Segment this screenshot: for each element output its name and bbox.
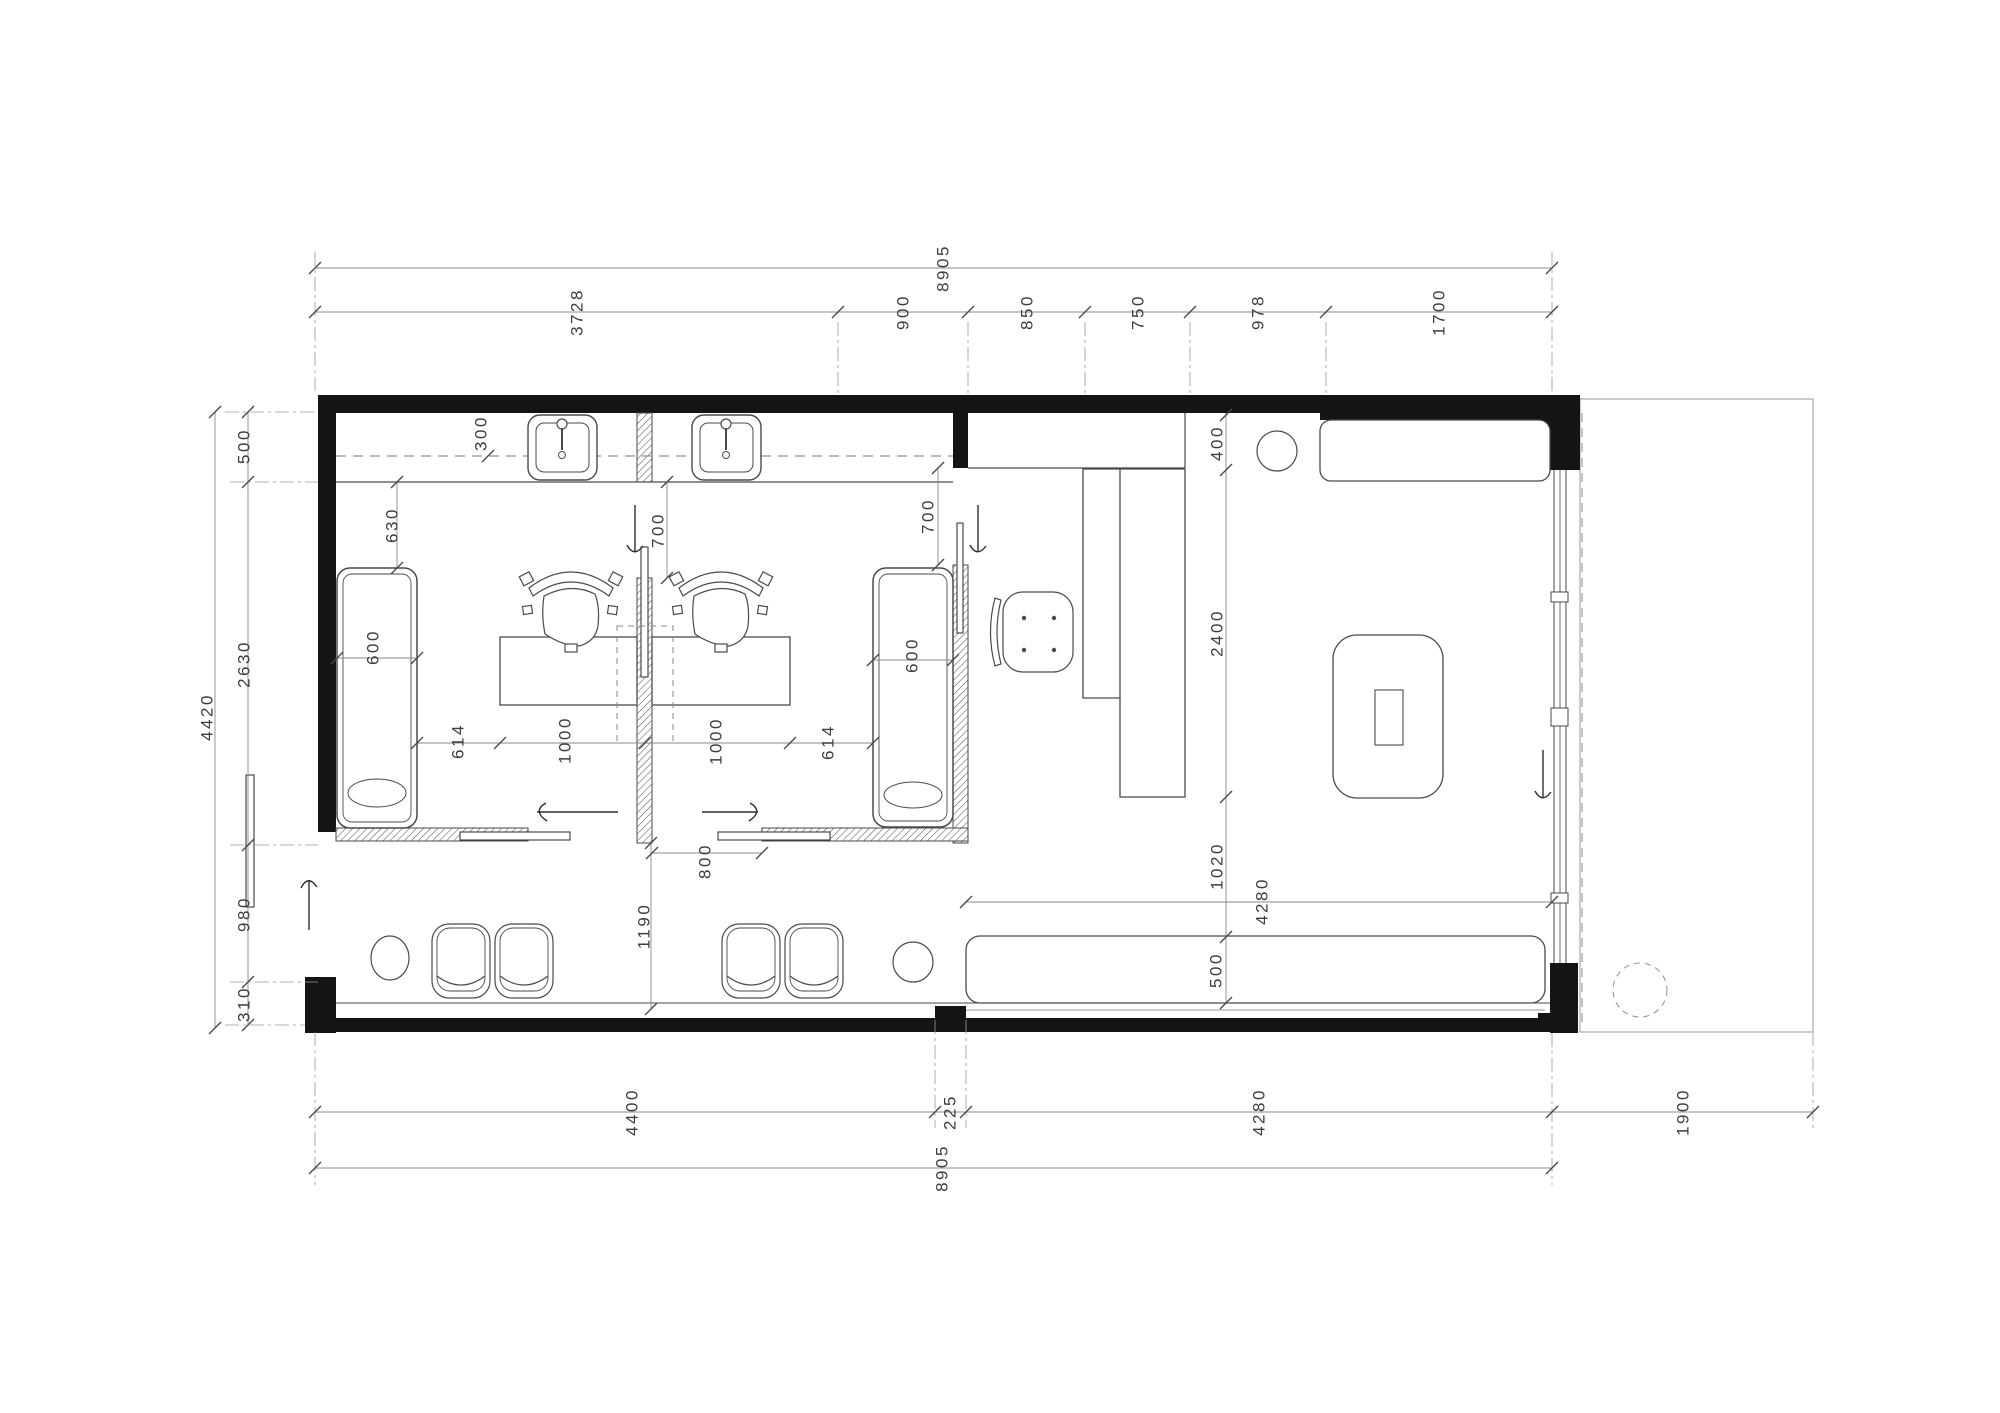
dim-label: 1190 [635, 903, 654, 950]
treatment-bed-1 [337, 568, 417, 828]
room1-slide-left-arrow [537, 803, 618, 821]
dim-label: 4280 [1253, 877, 1272, 925]
dim-label: 310 [235, 986, 254, 1022]
mullion [1551, 893, 1568, 903]
dim-label: 225 [941, 1094, 960, 1130]
dim-label: 614 [449, 723, 468, 759]
sink-1 [528, 415, 597, 480]
waiting-chair [495, 924, 553, 998]
bottom-right-column [1550, 963, 1578, 1033]
window-glazing [1551, 470, 1568, 963]
floor-plan-drawing: 8905 3728 900 850 750 978 1700 4420 500 … [0, 0, 2000, 1413]
dim-label: 614 [819, 724, 838, 760]
dim-label: 630 [383, 507, 402, 543]
treatment-bed-2 [873, 568, 953, 827]
dim-label: 3728 [568, 288, 587, 336]
dim-label: 500 [1207, 952, 1226, 988]
faucet-icon [557, 419, 567, 429]
dim-label-overall-height: 4420 [198, 693, 217, 741]
dim-label: 1020 [1208, 842, 1227, 890]
coffee-table [1333, 635, 1443, 798]
waiting-chair [432, 924, 490, 998]
top-wall [318, 395, 1580, 413]
dim-label: 800 [696, 843, 715, 879]
extension-lines [225, 252, 1813, 1185]
dim-label-overall-bottom: 8905 [933, 1144, 952, 1192]
dim-label: 4280 [1250, 1088, 1269, 1136]
dim-label: 700 [919, 498, 938, 534]
bottom-wall [318, 1018, 1578, 1032]
room2-slide-right-arrow [702, 803, 758, 821]
dim-label: 700 [649, 512, 668, 548]
dim-label: 2400 [1208, 609, 1227, 657]
dim-label: 300 [472, 415, 491, 451]
wall-cabinet [1320, 420, 1550, 481]
dim-label: 900 [894, 294, 913, 330]
dim-label: 1000 [707, 717, 726, 765]
dim-label: 2630 [235, 640, 254, 688]
room1-pocket-door-leaf [641, 547, 648, 677]
sink-2 [692, 415, 761, 480]
reception-office-chair [991, 592, 1074, 672]
dim-label: 978 [1249, 294, 1268, 330]
terrace-dashed-circle [1613, 963, 1667, 1017]
entry-slide-up-arrow [301, 880, 317, 930]
dim-label-terrace: 1900 [1674, 1088, 1693, 1136]
dim-label-overall-top: 8905 [934, 244, 953, 292]
pillow [884, 782, 942, 808]
room1-sliding-door-leaf [460, 832, 570, 840]
dim-label: 850 [1018, 294, 1037, 330]
dim-label: 500 [235, 428, 254, 464]
mullion [1551, 592, 1568, 602]
bottom-right-column-step [1538, 1013, 1552, 1032]
reception-desk [1083, 469, 1185, 797]
dim-label: 1000 [556, 716, 575, 764]
reception-wall-stub [953, 413, 968, 468]
left-wall [318, 395, 336, 832]
floor-plan-sheet: 8905 3728 900 850 750 978 1700 4420 500 … [0, 0, 2000, 1413]
pillow [348, 779, 406, 807]
top-wall-step [1320, 413, 1543, 420]
window-slide-down-arrow [1535, 750, 1551, 798]
room2-sliding-door-leaf [718, 832, 830, 840]
plant-circle [371, 936, 409, 980]
room1-slide-down-arrow [627, 505, 643, 552]
faucet-icon [721, 419, 731, 429]
dim-label: 980 [235, 896, 254, 932]
dim-label: 1700 [1430, 288, 1449, 336]
plant-circle [893, 942, 933, 982]
room2-door-leaf [957, 523, 963, 633]
partition-stub-counter [637, 413, 652, 482]
room2-slide-down-arrow [970, 505, 986, 552]
stool-circle [1257, 431, 1297, 471]
dim-label: 750 [1129, 294, 1148, 330]
waiting-chair [722, 924, 780, 998]
dim-label: 600 [364, 629, 383, 665]
bottom-wall-pier [935, 1006, 966, 1020]
waiting-chair [785, 924, 843, 998]
dim-label: 4400 [623, 1088, 642, 1136]
dim-label: 600 [903, 637, 922, 673]
terrace-outline [1580, 399, 1813, 1032]
mullion [1551, 708, 1568, 726]
dim-label: 400 [1208, 425, 1227, 461]
